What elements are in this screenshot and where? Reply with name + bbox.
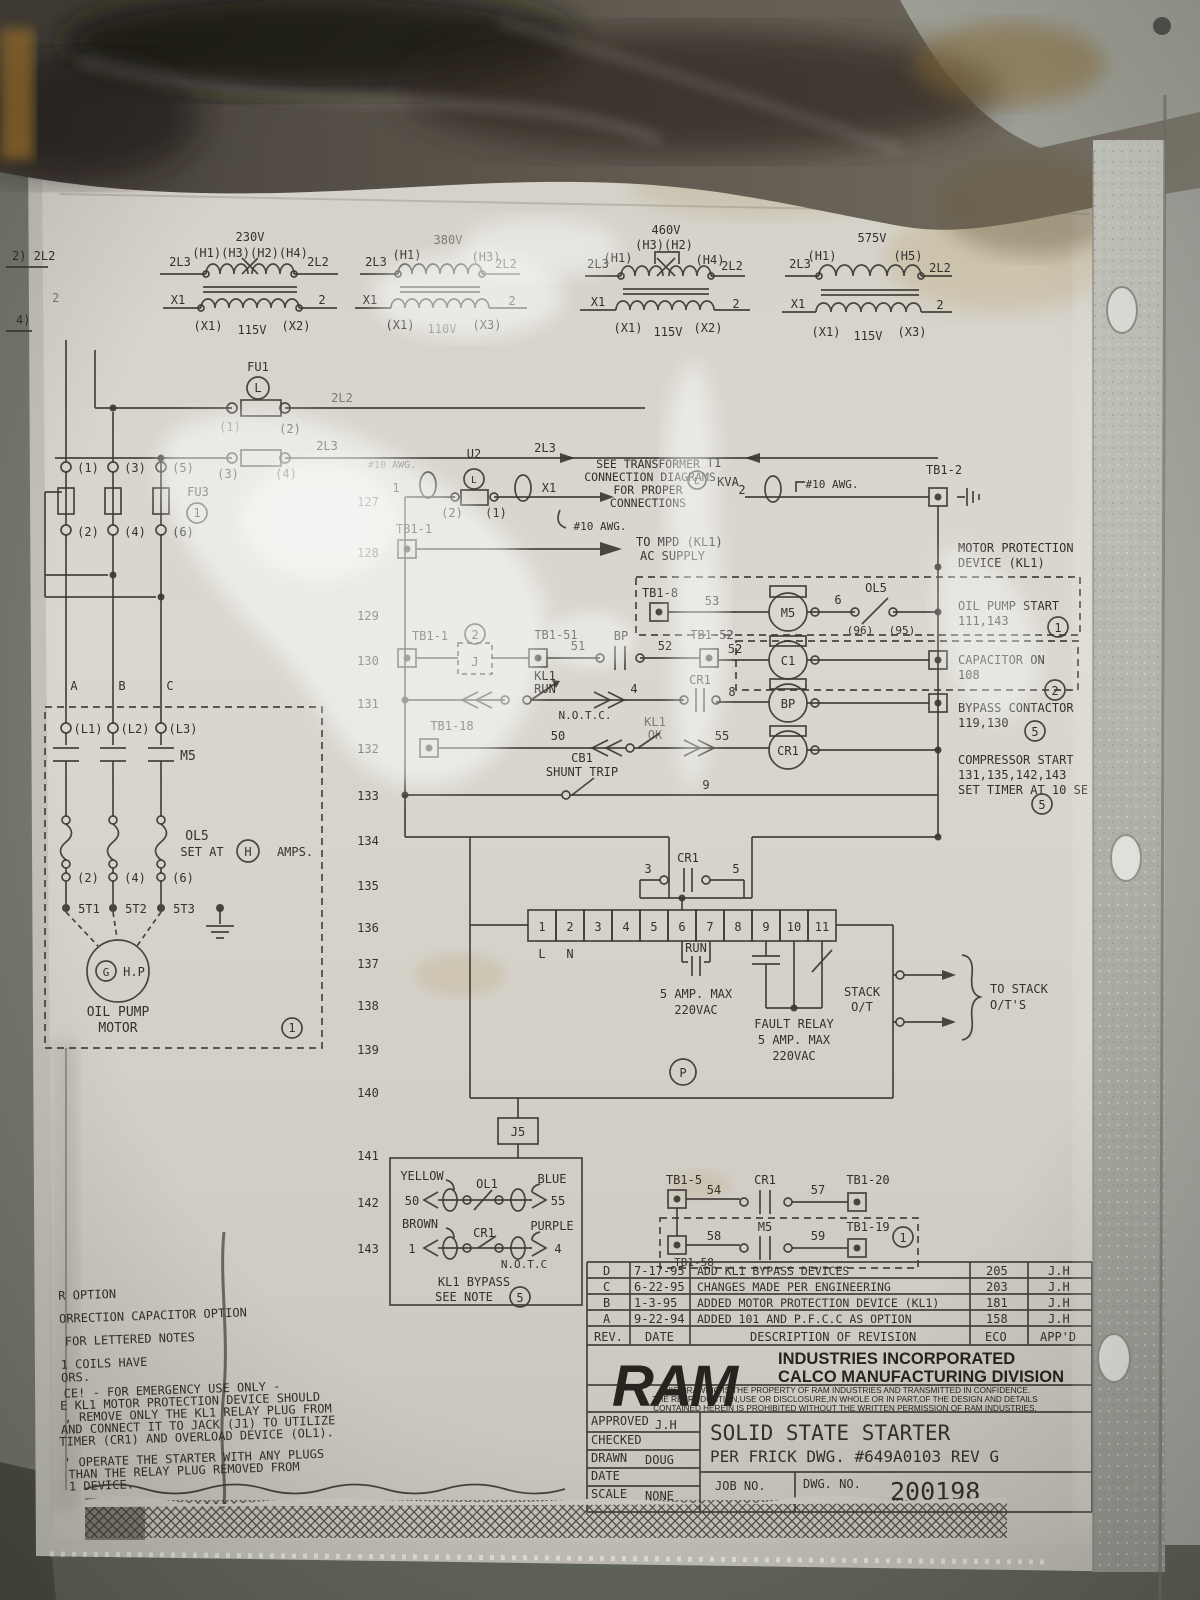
vignette (0, 0, 1200, 1600)
photo-of-schematic: 230V (H1)(H3)(H2)(H4) 2L3 2L2 X1 2 (X1) … (0, 0, 1200, 1600)
